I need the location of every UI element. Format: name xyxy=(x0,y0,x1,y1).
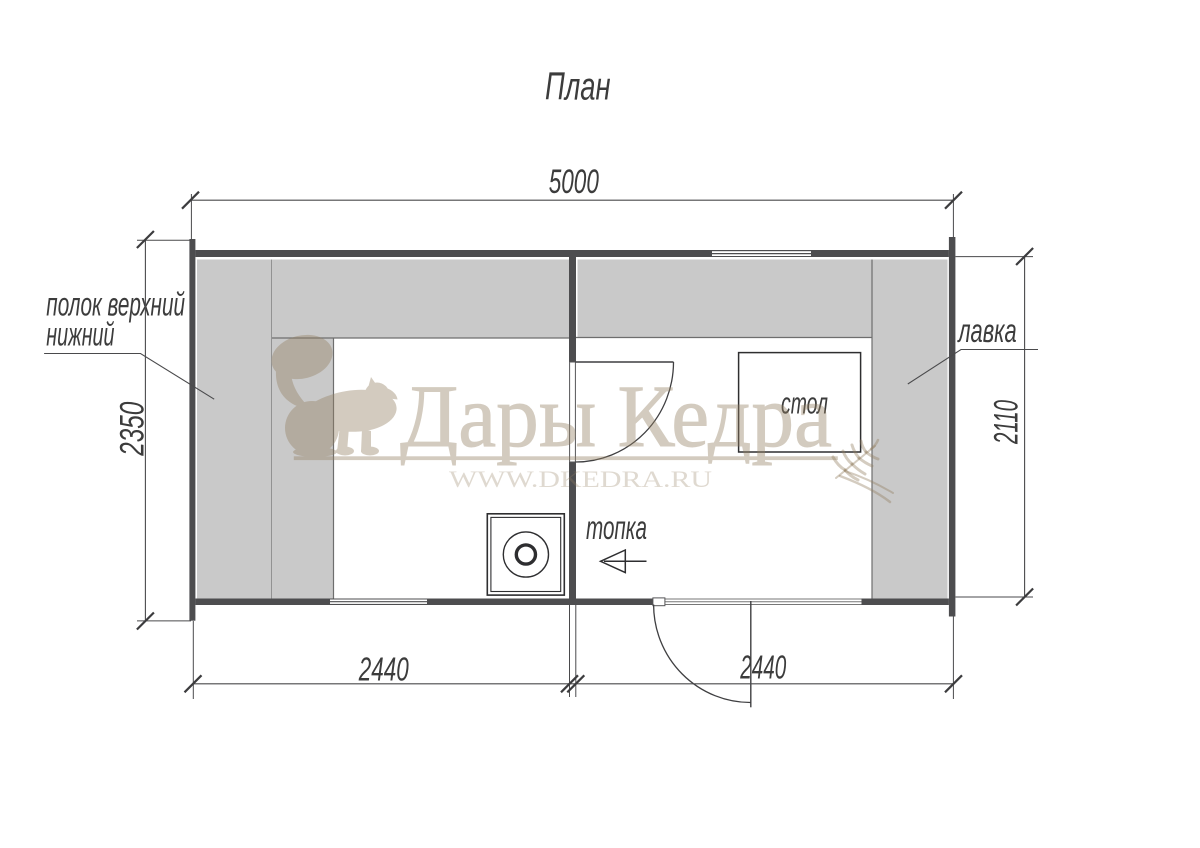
svg-text:2350: 2350 xyxy=(114,402,152,457)
svg-text:нижний: нижний xyxy=(46,316,114,353)
svg-text:Дары Кедра: Дары Кедра xyxy=(400,368,832,466)
svg-text:2440: 2440 xyxy=(740,649,787,686)
svg-text:лавка: лавка xyxy=(957,312,1017,349)
svg-text:2440: 2440 xyxy=(358,651,409,688)
svg-text:5000: 5000 xyxy=(549,163,599,201)
svg-text:План: План xyxy=(545,66,611,109)
svg-text:2110: 2110 xyxy=(988,400,1026,445)
svg-text:WWW.DKEDRA.RU: WWW.DKEDRA.RU xyxy=(449,467,713,492)
svg-text:топка: топка xyxy=(586,509,647,546)
